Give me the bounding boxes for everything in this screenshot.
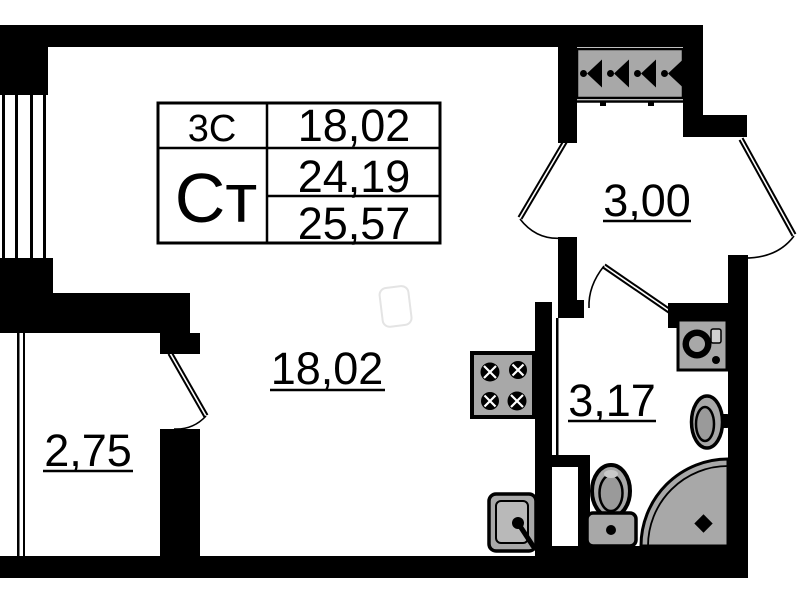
door-leaf [740,140,793,236]
window-line [43,93,46,260]
stove-body [472,353,534,417]
wall-above-balcony [0,293,190,333]
burner-icon [481,392,499,410]
wardrobe-icon [577,49,683,106]
table-type-code: Ст [175,159,258,237]
room-label-hallway: 3,00 [603,175,691,226]
basin-tap [721,414,729,428]
wall-balcony-stub-bottom [160,429,200,558]
window-line [15,93,18,260]
corner-shower-icon [641,459,728,546]
rail-tick [600,102,606,106]
window-line [30,93,33,260]
table-area-total-balcony: 25,57 [298,198,411,249]
shower-tray [641,459,728,546]
door-swing-arc [589,266,604,308]
table-living-area: 18,02 [298,100,411,151]
door-balcony [169,352,208,429]
washing-machine-icon [678,320,727,370]
door-leaf [605,265,672,311]
door-living-hall [519,139,568,238]
wall-bathroom-bottom [535,546,748,578]
glazing-line [17,333,20,556]
door-leaf [519,139,565,217]
room-label-living: 18,02 [271,343,384,394]
wall-hall-upper [558,47,577,143]
door-leaf [172,352,208,415]
door-swing-arc [520,219,564,238]
sink-faucet-base [512,517,524,529]
washer-knob [712,356,720,364]
toilet-bowl-highlight [604,470,618,478]
door-leaf [169,354,205,417]
washer-drawer [711,329,721,343]
door-swing-arc [174,416,206,429]
wall-hall-lower [558,237,577,303]
burner-icon [509,361,527,379]
glazing-line [23,333,25,556]
basin-inner [696,407,714,441]
room-label-balcony: 2,75 [44,425,132,476]
toilet-icon [587,465,636,546]
kitchen-sink-icon [489,494,536,551]
door-bathroom [589,265,672,314]
washer-drum-inner [689,336,705,352]
door-swing-arc [742,236,794,258]
door-leaf [522,141,568,219]
washbasin-icon [692,396,730,448]
toilet-bowl-inner [600,475,623,511]
wall-bath-face-line [556,318,559,458]
window-living-room [2,93,46,260]
wall-bath-top-left-stub [558,300,584,318]
wall-right [728,255,748,578]
balcony-glazing [17,333,25,556]
door-leaf [743,138,796,234]
room-label-bathroom: 3,17 [568,375,656,426]
burner-icon [508,392,527,411]
wall-entrance-stub [683,115,747,137]
wall-top [0,25,703,47]
floor-plan: 3С 18,02 Ст 24,19 25,57 18,02 3,00 3,17 … [0,0,799,600]
stove-icon [472,353,534,417]
wall-balcony-stub-top [160,333,200,354]
table-area-total: 24,19 [298,151,411,202]
entrance-door [740,138,796,258]
window-line [2,93,5,260]
wall-top-left-block [0,47,48,95]
door-leaf [603,268,670,314]
area-table: 3С 18,02 Ст 24,19 25,57 [158,100,440,249]
toilet-button [606,525,616,535]
floor-plan-drawing: 3С 18,02 Ст 24,19 25,57 18,02 3,00 3,17 … [0,0,799,600]
burner-icon [481,363,500,382]
rail-tick [648,102,654,106]
table-rooms-code: 3С [188,108,237,150]
watermark [379,285,413,327]
